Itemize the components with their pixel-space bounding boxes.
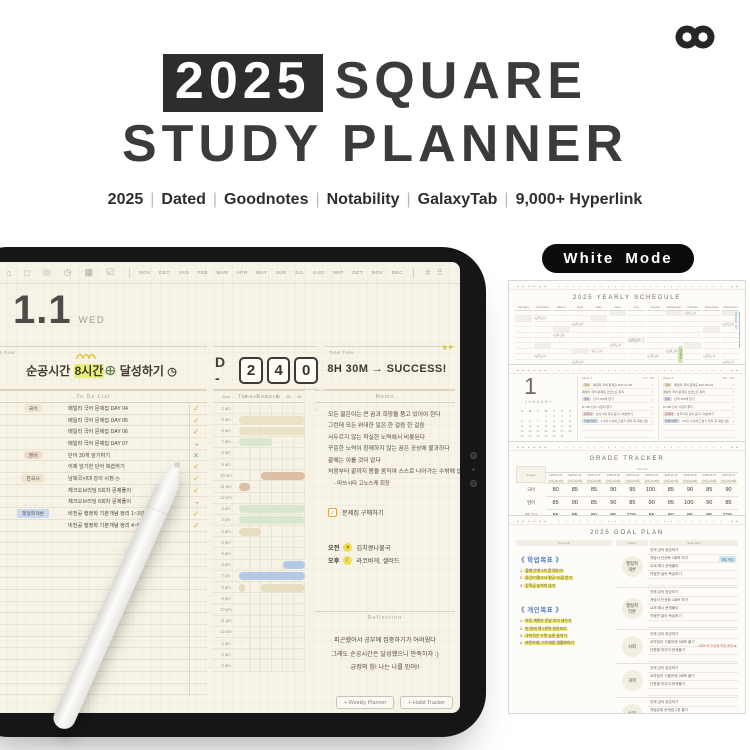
reflection-line: 긍정의 힘! 나는 나를 믿어!! <box>315 661 455 675</box>
goal-highlight: 하루 계획은 전날 미리 세우기 <box>524 619 572 623</box>
month-tab-apr[interactable]: APR <box>237 270 248 275</box>
week-item-tag: 행정학개론 <box>582 419 599 423</box>
subtitle-separator: | <box>407 191 411 208</box>
yearly-month-column: December+모의고사+모의고사겨울방학 시작 <box>722 305 739 365</box>
time-bar <box>239 528 261 536</box>
time-label: 4 pm <box>213 537 239 547</box>
time-label: 11 am <box>213 481 239 491</box>
check-mark-icon: ✓ <box>732 411 735 416</box>
week-item-tag: 영어 <box>663 397 672 401</box>
toolbar-divider <box>413 268 414 278</box>
check-mark-icon: ✓ <box>732 419 735 424</box>
planner-toolbar: ⌂□◎◷▦☑NOVDECJANFEBMARAPRMAYJUNJULAUGSEPO… <box>0 262 460 284</box>
check-mark-icon: ✓ <box>651 389 654 394</box>
grade-score-value: 85 <box>706 487 712 493</box>
goals-column-header: My Goals <box>516 540 612 546</box>
calendar-icon[interactable]: □ <box>24 268 29 278</box>
time-grid <box>239 649 305 659</box>
todo-text: 매일리 국어 문제집 DAY 06 <box>68 426 173 437</box>
subject-row: 행정학 각론전체 강의 완강하기개념서 단권화 1회독 하기교재 예시 문제풀이… <box>616 588 738 630</box>
time-row-11am[interactable]: 11 am <box>213 481 305 492</box>
week-item-text: 매일리 국어 문제집 DAY 01-05 <box>593 383 649 387</box>
calendar-weekday: F <box>559 409 565 413</box>
time-row-7pm[interactable]: 7 pm <box>213 571 305 582</box>
week-item-text: 1-3강 수강하고 필기 정리 후 복습 (완) <box>601 419 649 423</box>
time-row-2pm[interactable]: 2 pm <box>213 515 305 526</box>
calendar-day[interactable]: 2 <box>551 414 557 418</box>
todo-text: 어제 암기한 단어 복습하기 <box>68 461 173 472</box>
time-bar <box>239 483 250 491</box>
time-row-9am[interactable]: 9 am <box>213 459 305 470</box>
week-item[interactable]: 행정학개론4-6강 수강하고 필기 정리 후 복습 (완)✓ <box>663 418 735 425</box>
time-grid <box>239 459 305 469</box>
subtitle-separator: | <box>315 191 319 208</box>
memo-quote-line: 그런데 모든 위대한 일은 한 걸음 한 걸음 <box>328 421 455 432</box>
grade-subject: 국어 <box>516 483 546 496</box>
personal-goal-item: 2. 한 달에 책 2권씩 읽어보기 <box>520 626 612 633</box>
todays-goal-text: 순공시간 8시간⊕ 달성하기 ◷ <box>0 362 203 379</box>
calendar-day[interactable]: 18 <box>567 424 573 428</box>
check-mark-icon: ✓ <box>732 389 735 394</box>
todo-tag-wrap: 한국사 <box>4 473 62 484</box>
plan-line: 전체 강의 완강하기 <box>648 699 738 707</box>
week-item[interactable]: 영어단어 150개 암기✓ <box>582 396 654 403</box>
calendar-day[interactable]: 24 <box>559 429 565 433</box>
month-tab-nov[interactable]: NOV <box>139 270 150 275</box>
open-quote-icon: “ <box>315 407 318 417</box>
academic-goal-item: 1. 올해 안에 1차 합격하기! <box>520 568 612 575</box>
goal-post: 달성하기 <box>116 364 167 378</box>
calendar-day[interactable]: 13 <box>527 424 533 428</box>
time-row-4pm[interactable]: 4 pm <box>213 537 305 548</box>
time-row-6am[interactable]: 6 am <box>213 425 305 436</box>
grade-score-value: 90 <box>572 500 578 506</box>
habit-tracker-button[interactable]: + Habit Tracker <box>400 696 453 709</box>
time-row-10am[interactable]: 10 am <box>213 470 305 481</box>
week-item[interactable]: 국어매일리 국어 문제집 DAY 01-05✓ <box>582 382 654 389</box>
week-label: Week 1 <box>582 376 592 380</box>
check-mark-icon: ✓ <box>732 404 735 409</box>
subtitle-item: GalaxyTab <box>418 191 498 208</box>
todo-tag: 영어 <box>24 451 43 459</box>
month-tab-nov[interactable]: NOV <box>372 270 383 275</box>
time-row-9pm[interactable]: 9 pm <box>213 593 305 604</box>
plan-line: 개념서 단권화 1회독 하기 <box>648 597 738 605</box>
grade-score-value: 85 <box>591 500 597 506</box>
plan-line: 전체 강의 완강하기 <box>648 547 738 555</box>
monthly-page[interactable]: 1 JANUARY SMTWTFS12345678910111213141516… <box>508 364 746 442</box>
goal-plan-page[interactable]: 2025 GOAL PLAN My Goals 《 학업목표 》 1. 올해 안… <box>508 515 746 714</box>
todo-row[interactable]: 영어단어 30개 암기하기✕ <box>0 450 207 462</box>
calendar-weekday: T <box>551 409 557 413</box>
arrow-mark-icon: → <box>650 405 654 409</box>
calendar-day[interactable]: 20 <box>527 429 533 433</box>
personal-goals-title: 《 개인목표 》 <box>518 604 612 614</box>
grade-data-row: 영어85908590859095100✓9085 <box>516 496 738 509</box>
page: 2025SQUARE STUDY PLANNER 2025|Dated|Good… <box>0 0 750 750</box>
time-label: 12 am <box>213 627 239 637</box>
grade-corner-label: Subject <box>516 466 546 483</box>
time-row-3am[interactable]: 3 am <box>213 660 305 671</box>
record-icon[interactable]: ◎ <box>43 267 51 278</box>
todo-row <box>0 590 207 602</box>
personal-goal-item: 1. 하루 계획은 전날 미리 세우기 <box>520 618 612 625</box>
reflection-line: 피곤했어서 공부에 집중하기가 어려웠다 <box>315 634 455 648</box>
calendar-day[interactable]: 31 <box>559 434 565 438</box>
grade-score: 85 <box>661 483 680 496</box>
weekly-planner-button[interactable]: + Weekly Planner <box>336 696 394 709</box>
calendar-day[interactable]: 21 <box>535 429 541 433</box>
plan-cell: 전체 강의 완강하기요약정리 기출문제 3회독 풀기단원별 마무리 문제풀기← … <box>648 630 738 663</box>
week-item[interactable]: 한국사삼국시대 강의 듣기 / 복습하기✓ <box>663 411 735 418</box>
grade-score-value: 95 <box>668 500 674 506</box>
mini-toolbar <box>509 365 745 374</box>
month-number: 1 <box>515 375 577 398</box>
week-item[interactable]: D-100 단어 시험지 풀기→ <box>582 403 654 410</box>
month-tab-sep[interactable]: SEP <box>333 270 344 275</box>
month-name: JANUARY <box>515 400 577 404</box>
home-icon[interactable]: ⌂ <box>6 268 11 278</box>
minute-tick: 50 <box>283 394 294 399</box>
calendar-day[interactable]: 16 <box>551 424 557 428</box>
red-annotation: ← 1회독 후 단권화 작업 예정 ★ <box>694 643 737 648</box>
week-range: 1/1 - 1/5 <box>643 376 654 380</box>
memo-checkbox-item[interactable]: ✓ 문제집 구매하기 <box>328 508 455 517</box>
week-item[interactable]: 영어단어 150개 암기✓ <box>663 396 735 403</box>
todo-text: 단어 30개 암기하기 <box>68 450 173 461</box>
todo-row[interactable]: 매일리 국어 문제집 DAY 05✓ <box>0 415 207 427</box>
week-item[interactable]: 행정학개론1-3강 수강하고 필기 정리 후 복습 (완)✓ <box>582 418 654 425</box>
week-item-tag: 행정학개론 <box>663 419 680 423</box>
calendar-day[interactable]: 7 <box>535 419 541 423</box>
calendar-weekday: S <box>519 409 525 413</box>
calendar-day[interactable]: 12 <box>519 424 525 428</box>
reflection-line: 그래도 순공시간은 달성했으니 만족하자 :) <box>315 648 455 662</box>
calendar-weekday: S <box>567 409 573 413</box>
goal-highlight: 중간/기말고사 평균 90점 받기 <box>524 576 573 580</box>
grade-header-right: Test Info2025.01.052025.01.142025.01.272… <box>546 466 738 483</box>
calendar-day[interactable]: 5 <box>519 419 525 423</box>
goal-highlight: 규칙적인 수면 습관 들이기 <box>524 634 568 638</box>
calendar-day[interactable]: 8 <box>543 419 549 423</box>
todo-row[interactable]: 매일리 국어 문제집 DAY 07→ <box>0 438 207 450</box>
yearly-month-column: March+모의고사 <box>553 305 570 365</box>
grade-score: 85 <box>546 496 565 509</box>
dday-prefix: D - <box>215 354 235 386</box>
minute-tick: 10 <box>239 394 250 399</box>
study-plan-column: Subject Study Plan 행정학 개론전체 강의 완강하기개념서 단… <box>616 540 738 714</box>
yearly-month-column: February+모의고사+모의고사 <box>534 305 551 365</box>
time-row-12am[interactable]: 12 am <box>213 627 305 638</box>
grade-score-value: 80 <box>552 487 558 493</box>
week-item-text: 매일리 국어 문제집 DAY 06-10 <box>674 383 730 387</box>
time-label: 7 am <box>213 437 239 447</box>
calendar-day[interactable]: 22 <box>543 429 549 433</box>
tablet-device: ⌂□◎◷▦☑NOVDECJANFEBMARAPRMAYJUNJULAUGSEPO… <box>0 247 486 737</box>
grade-score: 85 <box>584 496 603 509</box>
subtitle-item: 9,000+ Hyperlink <box>516 191 643 208</box>
time-row-5pm[interactable]: 5 pm <box>213 548 305 559</box>
grade-score: 95 <box>661 496 680 509</box>
calendar-day[interactable]: 23 <box>551 429 557 433</box>
infinity-logo <box>674 22 716 52</box>
title-line-1: 2025SQUARE <box>0 54 750 112</box>
goal-highlight: 8시간 <box>74 364 105 378</box>
plan-line: 전체 강의 완강하기 <box>648 589 738 597</box>
morning-text: 김치콩나물국 <box>356 543 390 552</box>
yearly-title: 2025 YEARLY SCHEDULE <box>509 290 745 305</box>
time-label: 2 am <box>213 649 239 659</box>
time-row-3pm[interactable]: 3 pm <box>213 526 305 537</box>
subject-circle: 행정학 각론 <box>622 598 643 619</box>
todo-row[interactable]: 행정학개론비전공 행정학 기본개념 정리 1~3강 복습 ◷✓ <box>0 508 207 520</box>
yearly-blue-note: 겨울방학 시작 <box>734 312 740 348</box>
time-bar <box>239 427 305 435</box>
month-tab-feb[interactable]: FEB <box>198 270 208 275</box>
memo-quote-line: 모든 젊은이는 큰 꿈과 희망을 품고 있어야 한다 <box>328 410 455 421</box>
week-item-text: D-100 단어 시험지 풀기 <box>663 405 730 409</box>
memo-quote-line: 끝에는 이룰 것이 없다 <box>328 456 455 467</box>
plan-line: 요약정리 기출문제 3회독 풀기 <box>648 673 738 681</box>
dday-section: D - 2 4 0 <box>213 346 318 390</box>
calendar-day[interactable]: 11 <box>567 419 573 423</box>
todo-row[interactable]: 국어매일리 국어 문제집 DAY 04✓ <box>0 403 207 415</box>
week-item-text: 삼국시대 강의 듣기 / 복습하기 <box>677 412 730 416</box>
calendar-day[interactable]: 27 <box>527 434 533 438</box>
subject-circle: 사회 <box>622 636 643 657</box>
todo-row[interactable]: 체크오브리딩 6회차 문제풀이→ <box>0 497 207 509</box>
subtitle-item: Goodnotes <box>224 191 308 208</box>
yearly-month-column: August+모의고사 <box>647 305 664 365</box>
calendar-day[interactable]: 14 <box>535 424 541 428</box>
subject-circle: 행정학 개론 <box>622 556 643 577</box>
time-label: 12 pm <box>213 493 239 503</box>
personal-goal-item: 3. 규칙적인 수면 습관 들이기 <box>520 633 612 640</box>
week-label: Week 2 <box>663 376 673 380</box>
yearly-green-note: 겨울특강 <box>678 346 683 363</box>
calendar-day[interactable]: 4 <box>567 414 573 418</box>
toolbar-right-icons: #⠿ <box>425 268 442 277</box>
time-row-10pm[interactable]: 10 pm <box>213 604 305 615</box>
month-tab-dec[interactable]: DEC <box>392 270 403 275</box>
time-bar <box>239 572 305 580</box>
check-mark-icon: ✓ <box>732 397 735 402</box>
todays-goal-label: Today's Goal <box>0 350 15 355</box>
moon-icon: ☾ <box>343 556 352 565</box>
week-item-text: D-100 단어 시험지 풀기 <box>582 405 648 409</box>
subtitle-separator: | <box>213 191 217 208</box>
time-row-8pm[interactable]: 8 pm <box>213 582 305 593</box>
crown-doodle-icon <box>76 351 98 359</box>
calendar-day[interactable]: 28 <box>535 434 541 438</box>
check-mark-icon: ✓ <box>732 382 735 387</box>
grade-subject: 영어 <box>516 496 546 509</box>
grade-score: 80 <box>546 483 565 496</box>
month-tab-aug[interactable]: AUG <box>313 270 324 275</box>
time-row-6pm[interactable]: 6 pm <box>213 560 305 571</box>
week-item-text: 단어 150개 암기 <box>593 397 649 401</box>
title-square: SQUARE <box>335 52 587 110</box>
grade-score-value: 90 <box>687 487 693 493</box>
check-mark-icon: ✓ <box>651 397 654 402</box>
calendar-day[interactable]: 10 <box>559 419 565 423</box>
time-row-5am[interactable]: 5 am <box>213 414 305 425</box>
clock-doodle-icon: ◷ <box>167 366 177 378</box>
todo-row <box>0 684 207 696</box>
goal-pre: 순공시간 <box>26 364 74 378</box>
week-item-text: 4-6강 수강하고 필기 정리 후 복습 (완) <box>682 419 730 423</box>
week-range: 1/6 - 1/12 <box>722 376 735 380</box>
yearly-month-column: May<중간고사> <box>590 305 607 365</box>
todo-row <box>0 578 207 590</box>
evening-row: 오후 ☾ 라코바게, 샐러드 <box>328 556 455 565</box>
goal-highlight: 장학금 놓치지 않기 <box>524 584 556 588</box>
todo-row <box>0 555 207 567</box>
month-tab-jun[interactable]: JUN <box>276 270 286 275</box>
personal-goal-item: 4. 바른자세, 스트레칭 생활화하기 <box>520 640 612 647</box>
time-row-8am[interactable]: 8 am <box>213 448 305 459</box>
calendar-day[interactable]: 3 <box>559 414 565 418</box>
calendar-day[interactable]: 17 <box>559 424 565 428</box>
grade-score: 85 <box>565 483 584 496</box>
checklist-icon[interactable]: ☑ <box>106 267 114 278</box>
calendar-blank <box>527 414 533 418</box>
plan-line: 단원별 마무리 문제풀기 <box>648 647 738 655</box>
week-item[interactable]: 한국사선사시대 강의 듣기 / 복습하기✓ <box>582 411 654 418</box>
plan-cell: 전체 강의 완강하기요약정리 기출문제 3회독 풀기단원별 마무리 문제풀기 <box>648 664 738 697</box>
dday-digit-box: 4 <box>267 357 291 384</box>
camera-lens-icon <box>470 452 477 459</box>
grade-title: GRADE TRACKER <box>509 451 745 466</box>
grade-score-value: 100 <box>646 487 655 493</box>
sun-icon: ☀ <box>343 543 352 552</box>
date-weekday: WED <box>79 315 106 326</box>
calendar-day[interactable]: 1 <box>543 414 549 418</box>
clock-icon[interactable]: ◷ <box>64 267 72 278</box>
month-tab-jan[interactable]: JAN <box>179 270 189 275</box>
calendar-weekday: W <box>543 409 549 413</box>
calendar-day[interactable]: 6 <box>527 419 533 423</box>
calendar-day[interactable]: 26 <box>519 434 525 438</box>
time-label: 6 am <box>213 425 239 435</box>
calendar-weekday: M <box>527 409 533 413</box>
toolbar-divider <box>129 268 130 278</box>
time-label: 10 pm <box>213 604 239 614</box>
week-item[interactable]: 국어매일리 국어 문제집 DAY 06-10✓ <box>663 382 735 389</box>
calendar-day[interactable]: 19 <box>519 429 525 433</box>
perfect-score-mark: ✓ <box>655 488 658 492</box>
time-row-1am[interactable]: 1 am <box>213 638 305 649</box>
grade-score: 90 <box>642 496 661 509</box>
time-grid <box>239 403 305 413</box>
plan-line: 전체 강의 완강하기 <box>648 665 738 673</box>
planner-footer-buttons: + Weekly Planner + Habit Tracker <box>315 696 455 709</box>
evening-text: 라코바게, 샐러드 <box>356 556 399 565</box>
subtitle-separator: | <box>150 191 154 208</box>
plan-line: 교재 예시 문제풀이 <box>648 563 738 571</box>
goals-column: My Goals 《 학업목표 》 1. 올해 안에 1차 합격하기!2. 중간… <box>516 540 616 714</box>
hashtag-grid-icon[interactable]: # <box>425 268 429 277</box>
time-row-4am[interactable]: 4 am <box>213 403 305 414</box>
yearly-schedule-page[interactable]: 2025 YEARLY SCHEDULE JanuaryFebruary+모의고… <box>508 280 746 365</box>
week-item[interactable]: D-100 단어 시험지 풀기✓ <box>663 403 735 410</box>
grade-tracker-page[interactable]: GRADE TRACKER SubjectTest Info2025.01.05… <box>508 441 746 516</box>
subject-cell: 행정학 각론 <box>616 588 648 629</box>
plan-line: 단원별 마무리 문제풀기 <box>648 681 738 689</box>
todo-row[interactable]: 비전공 행정학 기본개념 정리 4~5강 복습 ◷✓ <box>0 520 207 532</box>
checkbox-checked-icon[interactable]: ✓ <box>328 508 337 517</box>
month-tab-jul[interactable]: JUL <box>295 270 305 275</box>
grade-score: 85 <box>584 483 603 496</box>
dot-grid-icon[interactable]: ⠿ <box>437 268 443 277</box>
time-row-2am[interactable]: 2 am <box>213 649 305 660</box>
reflection-section: Reflection 피곤했어서 공부에 집중하기가 어려웠다그래도 순공시간은… <box>315 611 455 675</box>
subject-circle: 과학 <box>622 670 643 691</box>
todo-tag-wrap: 국어 <box>4 403 62 414</box>
date-block: 1.1 WED <box>13 288 105 333</box>
time-bar <box>239 516 305 524</box>
week-item-text: 매일리 국어 문제집 오답노트 정리 <box>663 390 730 394</box>
time-label: 5 am <box>213 414 239 424</box>
yearly-month-column: January <box>515 305 532 365</box>
subtitle-item: Dated <box>161 191 205 208</box>
date-number: 1.1 <box>13 288 72 333</box>
calendar-day[interactable]: 30 <box>551 434 557 438</box>
plan-empty-line <box>648 655 738 662</box>
time-grid <box>239 593 305 603</box>
todo-row[interactable]: 매일리 국어 문제집 DAY 06✓ <box>0 426 207 438</box>
time-row-1pm[interactable]: 1 pm <box>213 504 305 515</box>
camera-module <box>468 452 478 487</box>
goal-highlight: 바른자세, 스트레칭 생활화하기 <box>524 641 575 645</box>
grade-score: 90 <box>604 483 623 496</box>
calendar-day[interactable]: 15 <box>543 424 549 428</box>
total-time-section: Total Time ★✦ 8H 30M → SUCCESS! <box>325 346 455 390</box>
week-item[interactable]: 매일리 국어 문제집 오답노트 정리✓ <box>582 389 654 396</box>
calendar-day[interactable]: 25 <box>567 429 573 433</box>
stats-icon[interactable]: ▦ <box>85 267 94 278</box>
month-tab-oct[interactable]: OCT <box>352 270 363 275</box>
grade-score-value: 90 <box>706 500 712 506</box>
memo-quote: “ 모든 젊은이는 큰 꿈과 희망을 품고 있어야 한다그런데 모든 위대한 일… <box>315 403 455 487</box>
week-header: Week 21/6 - 1/12 <box>663 376 735 380</box>
month-tab-may[interactable]: MAY <box>256 270 267 275</box>
time-label: 4 am <box>213 403 239 413</box>
month-tab-mar[interactable]: MAR <box>216 270 228 275</box>
grade-header-group: SubjectTest Info2025.01.052025.01.142025… <box>516 466 738 483</box>
time-row-7am[interactable]: 7 am <box>213 437 305 448</box>
time-row-12pm[interactable]: 12 pm <box>213 493 305 504</box>
week-item[interactable]: 매일리 국어 문제집 오답노트 정리✓ <box>663 389 735 396</box>
time-record-column: Hour102030405060 4 am5 am6 am7 am8 am9 a… <box>213 390 305 672</box>
month-tab-dec[interactable]: DEC <box>159 270 170 275</box>
todo-row <box>0 672 207 684</box>
time-label: 8 pm <box>213 582 239 592</box>
grade-score-value: 90 <box>610 500 616 506</box>
plan-line: 개념유형 문제집 2권 풀기 <box>648 707 738 714</box>
time-row-11pm[interactable]: 11 pm <box>213 616 305 627</box>
time-bar <box>239 438 272 446</box>
time-bar <box>239 584 245 592</box>
academic-goals-title: 《 학업목표 》 <box>518 554 612 564</box>
calendar-day[interactable]: 9 <box>551 419 557 423</box>
todo-tag: 국어 <box>24 404 43 412</box>
week-item-tag: 한국사 <box>582 412 594 416</box>
calendar-day[interactable]: 29 <box>543 434 549 438</box>
grade-score: 90 <box>604 496 623 509</box>
feature-subtitle: 2025|Dated|Goodnotes|Notability|GalaxyTa… <box>0 191 750 209</box>
time-grid <box>239 638 305 648</box>
